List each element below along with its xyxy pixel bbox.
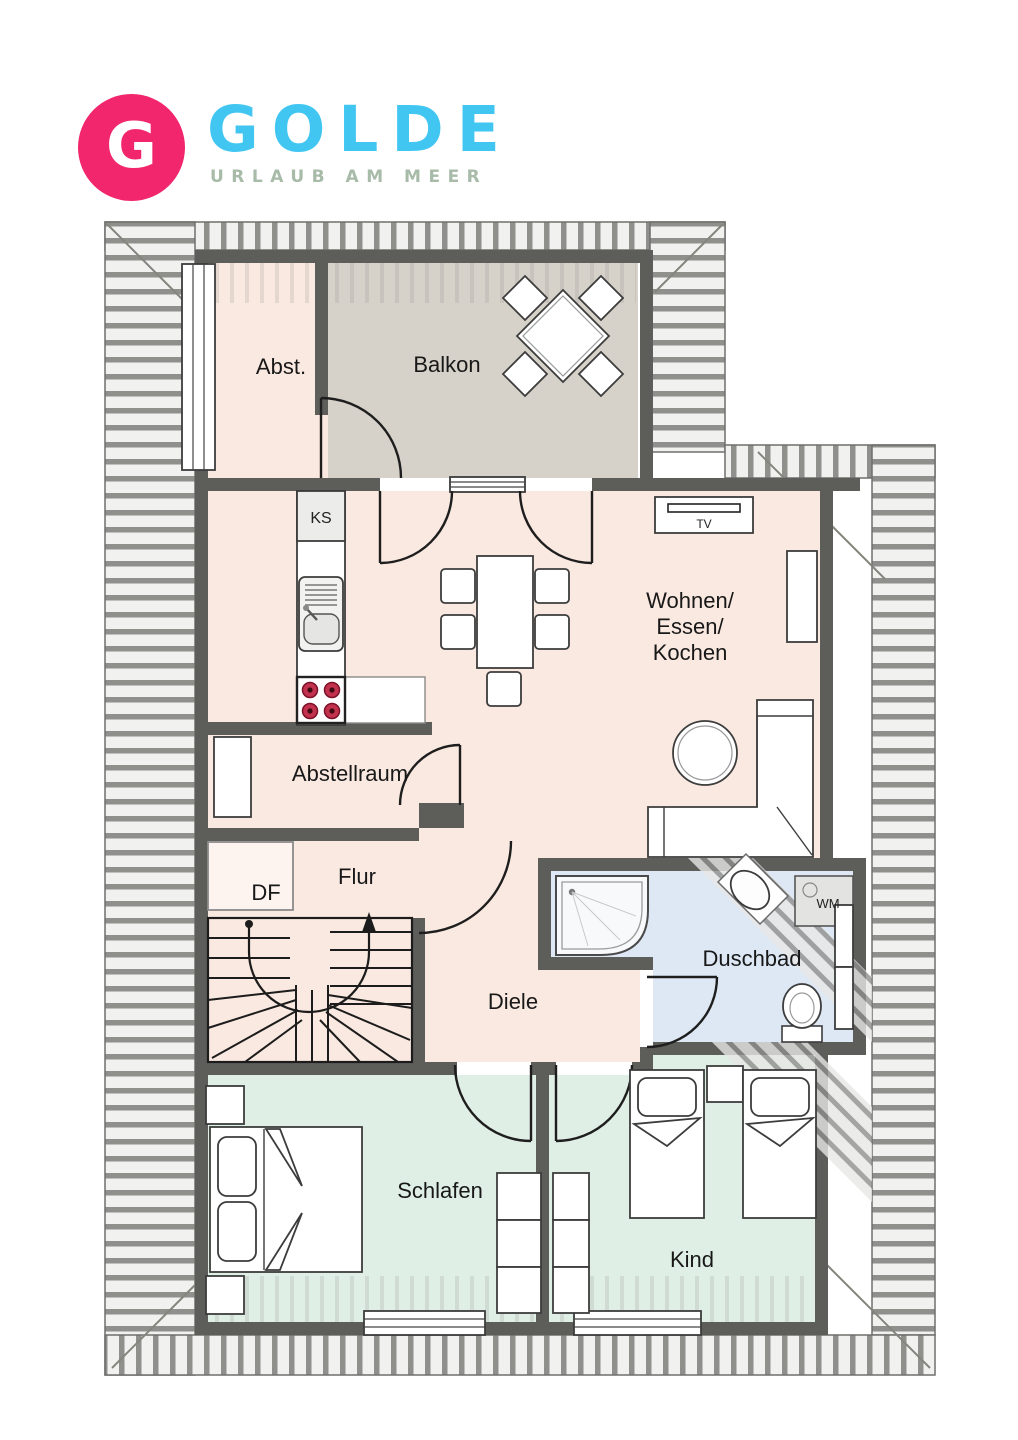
kitchen-sink	[299, 577, 343, 651]
page: G GOLDE URLAUB AM MEER	[0, 0, 1018, 1440]
balcony-set	[503, 276, 623, 396]
label-wohnen-2: Essen/	[656, 614, 724, 639]
bathroom-cabinet	[835, 905, 853, 1029]
kitchen-counter-corner	[345, 677, 425, 723]
window-kind	[574, 1311, 701, 1335]
label-wohnen-1: Wohnen/	[646, 588, 735, 613]
label-abstellraum: Abstellraum	[292, 761, 408, 786]
stove	[297, 677, 345, 723]
pillow	[218, 1137, 256, 1196]
window-abstellraum	[214, 737, 251, 817]
single-bed	[743, 1070, 816, 1218]
coffee-table	[673, 721, 737, 785]
label-diele: Diele	[488, 989, 538, 1014]
label-schlafen: Schlafen	[397, 1178, 483, 1203]
nightstand	[707, 1066, 743, 1102]
wardrobe-kind	[553, 1173, 589, 1313]
dining-table	[477, 556, 533, 668]
label-fridge: KS	[310, 510, 331, 527]
pillow	[751, 1078, 809, 1116]
shower	[556, 876, 648, 955]
nightstand	[206, 1086, 244, 1124]
label-kind: Kind	[670, 1247, 714, 1272]
nightstand	[206, 1276, 244, 1314]
window-schlafen	[364, 1311, 485, 1335]
label-balkon: Balkon	[413, 352, 480, 377]
window-abst	[182, 264, 215, 470]
label-wohnen-3: Kochen	[653, 640, 728, 665]
double-bed	[210, 1127, 362, 1272]
label-df: DF	[251, 880, 280, 905]
label-abst: Abst.	[256, 354, 306, 379]
single-bed	[630, 1070, 704, 1218]
label-tv: TV	[696, 517, 711, 531]
toilet	[782, 984, 822, 1042]
label-duschbad: Duschbad	[702, 946, 801, 971]
pillow	[218, 1202, 256, 1261]
floor-plan: Abst. Balkon KS TV Wohnen/ Essen/ Kochen…	[0, 0, 1018, 1440]
tv-icon	[668, 504, 740, 512]
label-flur: Flur	[338, 864, 376, 889]
pillow	[638, 1078, 696, 1116]
label-wm: WM	[816, 896, 839, 911]
wardrobe-schlafen	[497, 1173, 541, 1313]
window-living-right	[787, 551, 817, 642]
window-balcony-wall	[450, 477, 525, 492]
